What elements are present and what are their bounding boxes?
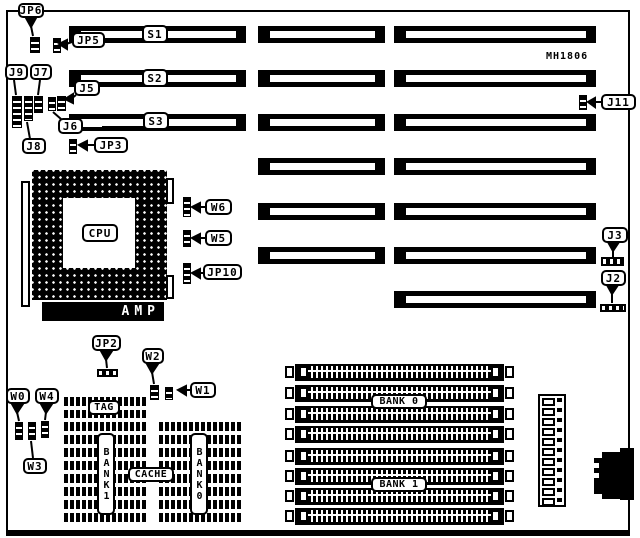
- callout-j3: J3: [602, 227, 628, 243]
- callout-w2: W2: [142, 348, 164, 364]
- callout-w5: W5: [205, 230, 232, 246]
- callout-bank1-simm: BANK 1: [371, 477, 427, 492]
- callout-cpu: CPU: [82, 224, 118, 242]
- callout-j2: J2: [601, 270, 626, 286]
- callout-jp3: JP3: [94, 137, 128, 153]
- callout-j9: J9: [5, 64, 28, 80]
- callout-w0: W0: [6, 388, 30, 404]
- callout-w3: W3: [23, 458, 47, 474]
- motherboard-diagram: MH1806 AMP JP6JP5J9J7J5J6J8JP3J11J3J2W6W…: [0, 0, 640, 538]
- callout-w1: W1: [190, 382, 216, 398]
- callout-jp5: JP5: [72, 32, 105, 48]
- callout-jp10: JP10: [203, 264, 242, 280]
- callout-jp2: JP2: [92, 335, 121, 351]
- callout-jp6: JP6: [18, 3, 44, 18]
- callout-bank0-chips: BANK0: [190, 433, 208, 515]
- callout-s1: S1: [142, 25, 168, 43]
- callout-w4: W4: [35, 388, 59, 404]
- callout-bank1-chips: BANK1: [97, 433, 115, 515]
- callout-s3: S3: [143, 112, 169, 130]
- callout-j11: J11: [601, 94, 636, 110]
- callout-tag: TAG: [88, 400, 120, 415]
- callout-j5: J5: [74, 80, 100, 96]
- callout-s2: S2: [142, 69, 168, 87]
- callout-j7: J7: [30, 64, 52, 80]
- callout-cache: CACHE: [128, 467, 174, 482]
- callout-j6: J6: [58, 118, 83, 134]
- callout-w6: W6: [205, 199, 232, 215]
- callout-bank0-simm: BANK 0: [371, 394, 427, 409]
- callout-j8: J8: [22, 138, 46, 154]
